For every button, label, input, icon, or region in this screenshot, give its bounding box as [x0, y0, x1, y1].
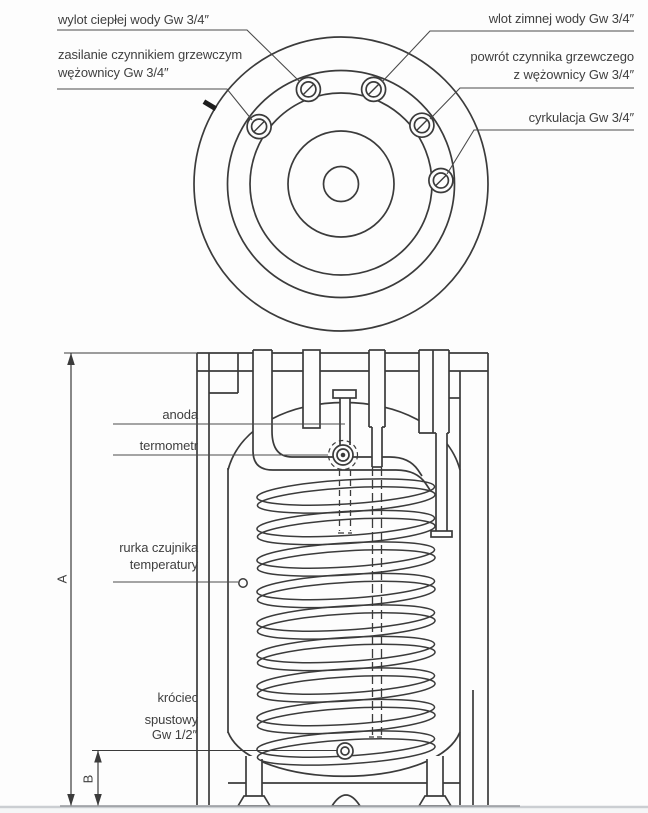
- port-hot-water-outlet: [296, 77, 320, 101]
- label-hot-water-outlet: wylot ciepłej wody Gw 3/4″: [57, 12, 209, 27]
- boiler-technical-diagram: wylot ciepłej wody Gw 3/4″ zasilanie czy…: [0, 0, 648, 813]
- side-view-labels: anoda termometr rurka czujnika temperatu…: [55, 407, 199, 783]
- label-sensor-tube-line2: temperatury: [130, 557, 199, 572]
- ground-line: [0, 806, 648, 813]
- top-view-labels: wylot ciepłej wody Gw 3/4″ zasilanie czy…: [57, 11, 634, 125]
- center-hub-circle: [324, 167, 359, 202]
- label-cold-water-inlet: wlot zimnej wody Gw 3/4″: [488, 11, 635, 26]
- drop-tube-flare: [431, 531, 452, 537]
- dimension-a-label: A: [55, 574, 70, 583]
- port-coil-return: [410, 113, 434, 137]
- thermometer-mark-icon: [204, 102, 216, 109]
- flange-ring-inner: [250, 93, 432, 275]
- cold-inlet-pipe-group: [419, 350, 452, 537]
- label-drain-line1: króciec: [158, 690, 199, 705]
- tank-cross-section-drawing: [64, 350, 488, 806]
- label-thermometer: termometr: [140, 438, 199, 453]
- anode-rod: [333, 390, 356, 446]
- label-coil-supply-line2: wężownicy Gw 3/4″: [57, 65, 169, 80]
- plugged-socket-pipe: [303, 350, 320, 428]
- diagram-canvas: wylot ciepłej wody Gw 3/4″ zasilanie czy…: [0, 0, 648, 813]
- flange-ring-outer: [228, 71, 455, 298]
- center-foot: [332, 795, 360, 806]
- thermometer-gauge: [329, 441, 358, 470]
- dimension-b: [92, 751, 337, 807]
- heating-coil: [256, 475, 436, 770]
- label-drain-line2: spustowy: [145, 712, 199, 727]
- sensor-tube-pipe: [369, 350, 385, 427]
- label-anode: anoda: [162, 407, 199, 422]
- port-circulation: [429, 169, 453, 193]
- left-foot: [238, 796, 270, 806]
- label-coil-supply-line1: zasilanie czynnikiem grzewczym: [58, 47, 242, 62]
- label-sensor-tube-line1: rurka czujnika: [119, 540, 199, 555]
- port-cold-water-inlet: [362, 77, 386, 101]
- sensor-tube-opening: [239, 579, 247, 587]
- sensor-tube-narrow: [372, 427, 382, 467]
- coil-feed-run-upper: [292, 457, 422, 476]
- dimension-b-label: B: [81, 775, 96, 784]
- label-coil-return-line1: powrót czynnika grzewczego: [470, 49, 634, 64]
- label-circulation: cyrkulacja Gw 3/4″: [529, 110, 635, 125]
- label-drain-line3: Gw 1/2″: [152, 727, 198, 742]
- label-coil-return-line2: z wężownicy Gw 3/4″: [514, 67, 635, 82]
- inner-vessel-circle: [288, 131, 394, 237]
- drain-port: [337, 743, 353, 759]
- right-foot: [419, 796, 451, 806]
- hidden-lines: [338, 467, 385, 737]
